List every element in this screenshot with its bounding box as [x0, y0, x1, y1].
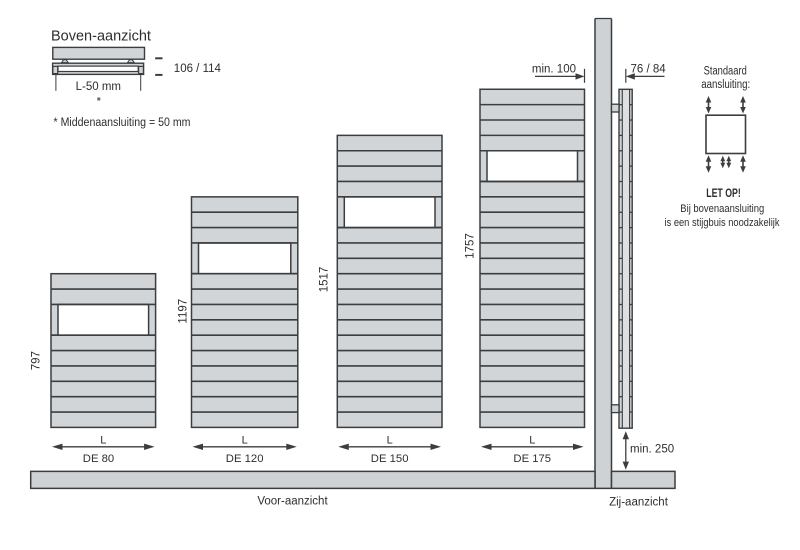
svg-text:DE 80: DE 80: [83, 453, 114, 465]
svg-text:Zij-aanzicht: Zij-aanzicht: [609, 497, 669, 509]
svg-text:DE 150: DE 150: [371, 453, 409, 465]
svg-text:1517: 1517: [319, 267, 331, 293]
svg-text:* Middenaansluiting = 50 mm: * Middenaansluiting = 50 mm: [54, 117, 191, 129]
svg-text:is een stijgbuis noodzakelijk: is een stijgbuis noodzakelijk: [665, 217, 780, 229]
svg-text:106 / 114: 106 / 114: [174, 63, 222, 75]
svg-text:DE 120: DE 120: [226, 453, 264, 465]
svg-text:L: L: [529, 434, 535, 446]
svg-text:LET OP!: LET OP!: [706, 188, 741, 200]
svg-text:1757: 1757: [465, 233, 477, 259]
svg-text:aansluiting:: aansluiting:: [701, 79, 750, 91]
svg-text:min. 100: min. 100: [532, 64, 576, 76]
svg-text:L: L: [387, 434, 393, 446]
svg-text:Bij bovenaansluiting: Bij bovenaansluiting: [680, 203, 764, 215]
svg-text:L: L: [242, 434, 248, 446]
svg-text:797: 797: [31, 351, 43, 370]
svg-text:min. 250: min. 250: [630, 444, 674, 456]
svg-text:DE 175: DE 175: [513, 453, 551, 465]
svg-text:L-50 mm: L-50 mm: [76, 81, 121, 93]
svg-text:Voor-aanzicht: Voor-aanzicht: [257, 496, 328, 508]
svg-text:L: L: [100, 434, 106, 446]
svg-text:Boven-aanzicht: Boven-aanzicht: [51, 29, 151, 45]
svg-text:1197: 1197: [178, 299, 190, 324]
svg-text:76 / 84: 76 / 84: [631, 64, 667, 76]
svg-text:Standaard: Standaard: [704, 66, 747, 78]
